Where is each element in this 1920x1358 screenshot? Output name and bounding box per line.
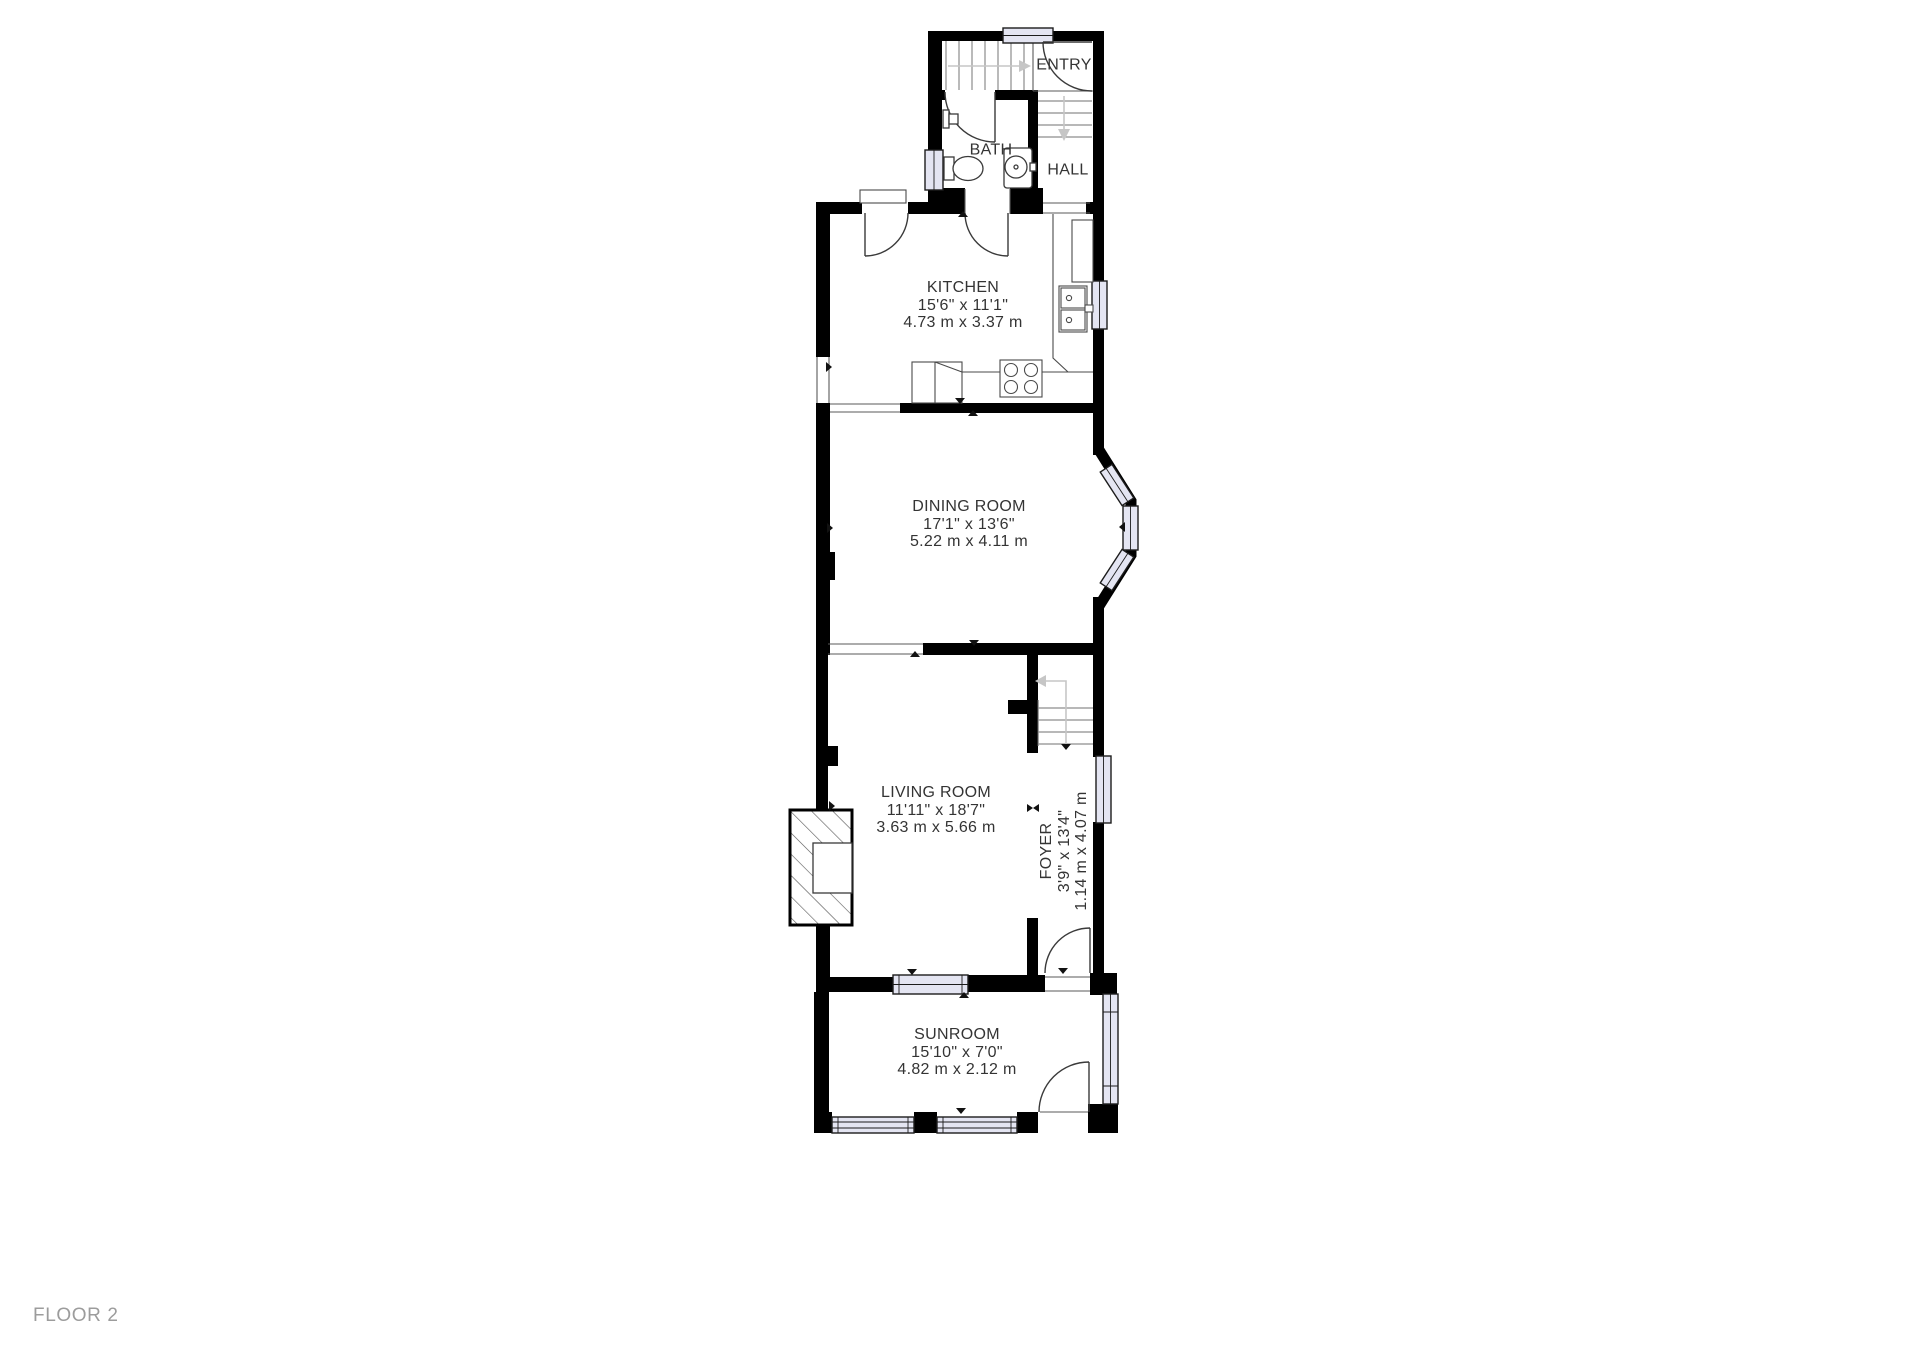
- toilet: [944, 157, 983, 181]
- stairs-foyer: [1035, 675, 1093, 750]
- stair-arrow-down-icon: [1058, 129, 1070, 141]
- stove: [1000, 360, 1042, 397]
- room-label-living-room: LIVING ROOM 11'11" x 18'7" 3.63 m x 5.66…: [876, 784, 995, 837]
- stairs-hall-down: [1038, 96, 1092, 141]
- room-label-kitchen: KITCHEN 15'6" x 11'1" 4.73 m x 3.37 m: [903, 279, 1022, 332]
- stair-start-marker: [1061, 744, 1071, 750]
- window-kitchen-right: [1092, 281, 1107, 329]
- floorplan-canvas: ENTRY BATH HALL KITCHEN 15'6" x 11'1" 4.…: [0, 0, 1920, 1358]
- fridge: [1072, 220, 1093, 282]
- window-sunroom-south-1: [832, 1117, 914, 1133]
- exterior-landing: [860, 190, 906, 203]
- room-label-foyer: FOYER 3'9" x 13'4" 1.14 m x 4.07 m: [1038, 791, 1091, 910]
- door-sunroom-exterior: [1039, 1062, 1089, 1112]
- window-bay-center: [1123, 506, 1138, 550]
- kitchen-sink: [1059, 286, 1093, 332]
- window-entry-top: [1003, 28, 1053, 43]
- kitchen-island: [912, 362, 962, 403]
- window-sunroom-south-2: [937, 1117, 1017, 1133]
- stairs-upper-run: [946, 41, 1031, 90]
- room-label-bath: BATH: [970, 141, 1013, 159]
- door-bath-to-kitchen: [965, 213, 1008, 256]
- room-label-dining-room: DINING ROOM 17'1" x 13'6" 5.22 m x 4.11 …: [910, 498, 1028, 551]
- firebox: [813, 843, 852, 893]
- window-sunroom-right: [1103, 994, 1118, 1104]
- window-foyer-right: [1096, 756, 1111, 823]
- floor-label: FLOOR 2: [33, 1305, 119, 1327]
- window-bath-left: [925, 150, 943, 190]
- window-living-south: [893, 975, 968, 994]
- room-label-entry: ENTRY: [1036, 56, 1091, 74]
- fireplace: [790, 810, 852, 925]
- stair-arrow-right-icon: [1019, 60, 1031, 72]
- door-kitchen-left: [865, 213, 908, 256]
- door-foyer-to-sunroom: [1045, 928, 1090, 973]
- floorplan-drawing: [0, 0, 1920, 1358]
- room-label-sunroom: SUNROOM 15'10" x 7'0" 4.82 m x 2.12 m: [897, 1026, 1016, 1079]
- room-label-hall: HALL: [1047, 161, 1088, 179]
- wall-sink: [943, 110, 958, 128]
